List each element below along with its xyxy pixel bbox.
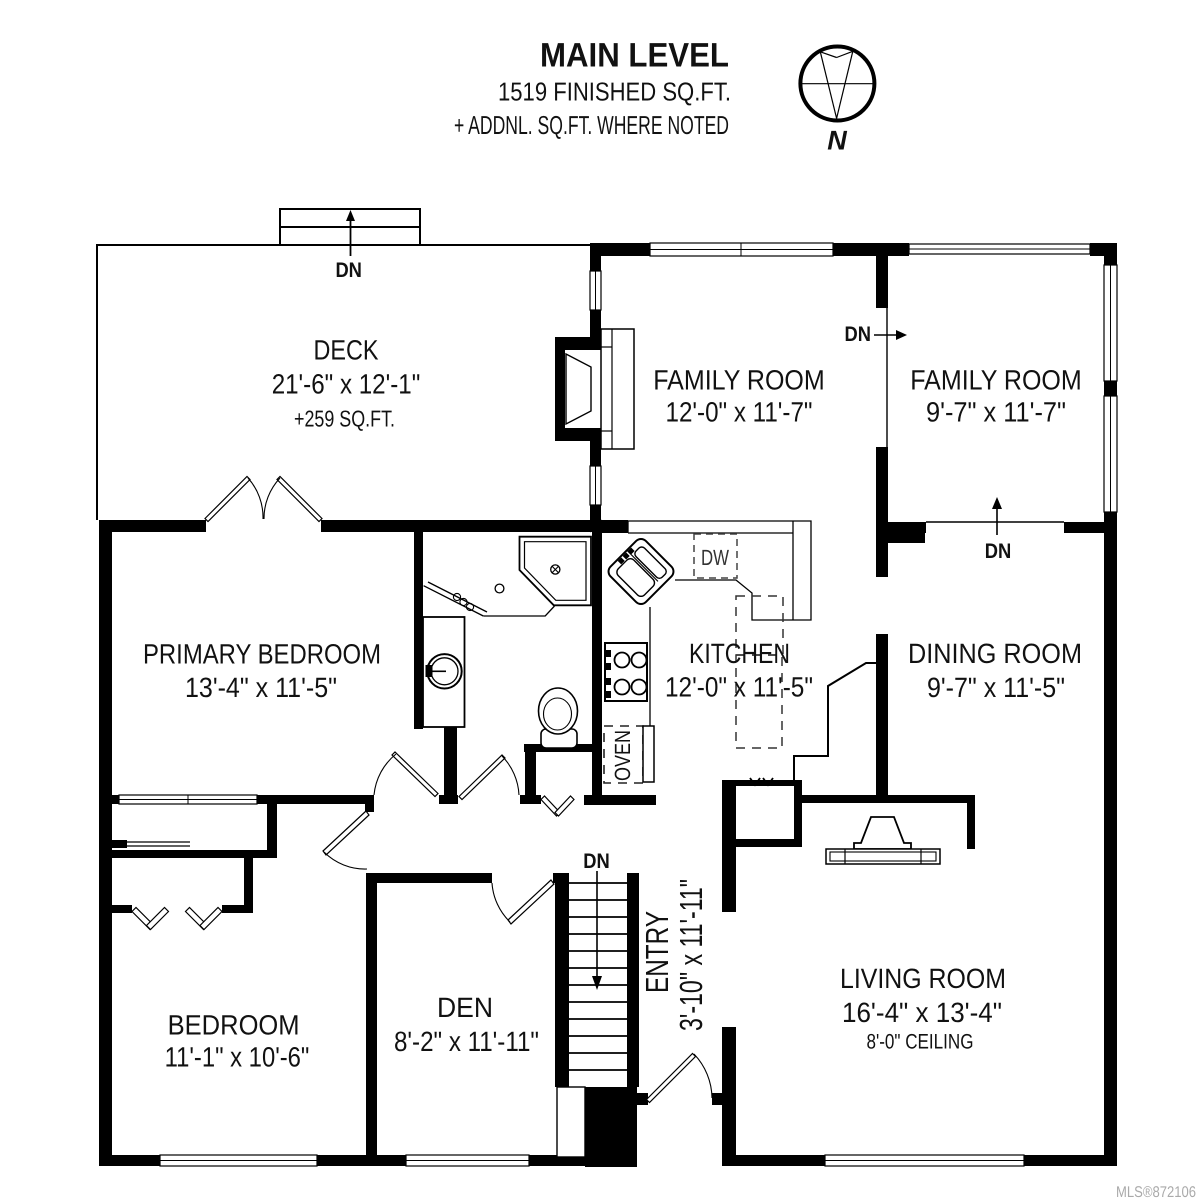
svg-text:FAMILY ROOM: FAMILY ROOM (910, 365, 1082, 396)
svg-text:12'-0" x 11'-7": 12'-0" x 11'-7" (666, 397, 813, 428)
svg-text:DINING ROOM: DINING ROOM (908, 638, 1082, 669)
svg-text:LIVING ROOM: LIVING ROOM (840, 963, 1006, 994)
svg-text:PRIMARY BEDROOM: PRIMARY BEDROOM (143, 639, 381, 670)
svg-text:21'-6" x 12'-1": 21'-6" x 12'-1" (272, 368, 421, 399)
svg-text:DN: DN (985, 540, 1012, 563)
svg-text:ENTRY: ENTRY (639, 911, 675, 993)
svg-text:MAIN LEVEL: MAIN LEVEL (540, 37, 729, 75)
svg-text:OVEN: OVEN (610, 730, 635, 781)
svg-text:13'-4" x 11'-5": 13'-4" x 11'-5" (185, 672, 337, 703)
svg-text:DN: DN (583, 850, 610, 873)
svg-text:9'-7" x 11'-5": 9'-7" x 11'-5" (927, 672, 1065, 703)
svg-text:16'-4" x 13'-4": 16'-4" x 13'-4" (842, 997, 1002, 1028)
svg-text:8'-2" x 11'-11": 8'-2" x 11'-11" (394, 1026, 539, 1057)
svg-text:DW: DW (701, 545, 729, 570)
svg-text:BEDROOM: BEDROOM (168, 1010, 300, 1041)
svg-text:DN: DN (845, 323, 872, 346)
svg-text:KITCHEN: KITCHEN (689, 638, 790, 669)
svg-text:MLS®872106: MLS®872106 (1116, 1184, 1196, 1200)
svg-text:N: N (827, 126, 847, 156)
svg-text:DECK: DECK (314, 335, 379, 366)
svg-text:1519 FINISHED SQ.FT.: 1519 FINISHED SQ.FT. (498, 77, 731, 107)
svg-text:DN: DN (335, 259, 362, 282)
svg-text:11'-1" x 10'-6": 11'-1" x 10'-6" (165, 1042, 310, 1073)
svg-text:3'-10" x 11'-11": 3'-10" x 11'-11" (673, 879, 709, 1031)
svg-text:FAMILY ROOM: FAMILY ROOM (653, 365, 825, 396)
svg-text:12'-0" x 11'-5": 12'-0" x 11'-5" (665, 672, 813, 703)
svg-text:+259 SQ.FT.: +259 SQ.FT. (294, 405, 395, 431)
svg-text:DEN: DEN (437, 992, 493, 1023)
svg-text:+ ADDNL. SQ.FT. WHERE NOTED: + ADDNL. SQ.FT. WHERE NOTED (454, 110, 729, 140)
svg-text:8'-0" CEILING: 8'-0" CEILING (867, 1031, 974, 1054)
svg-text:9'-7" x 11'-7": 9'-7" x 11'-7" (926, 397, 1066, 428)
